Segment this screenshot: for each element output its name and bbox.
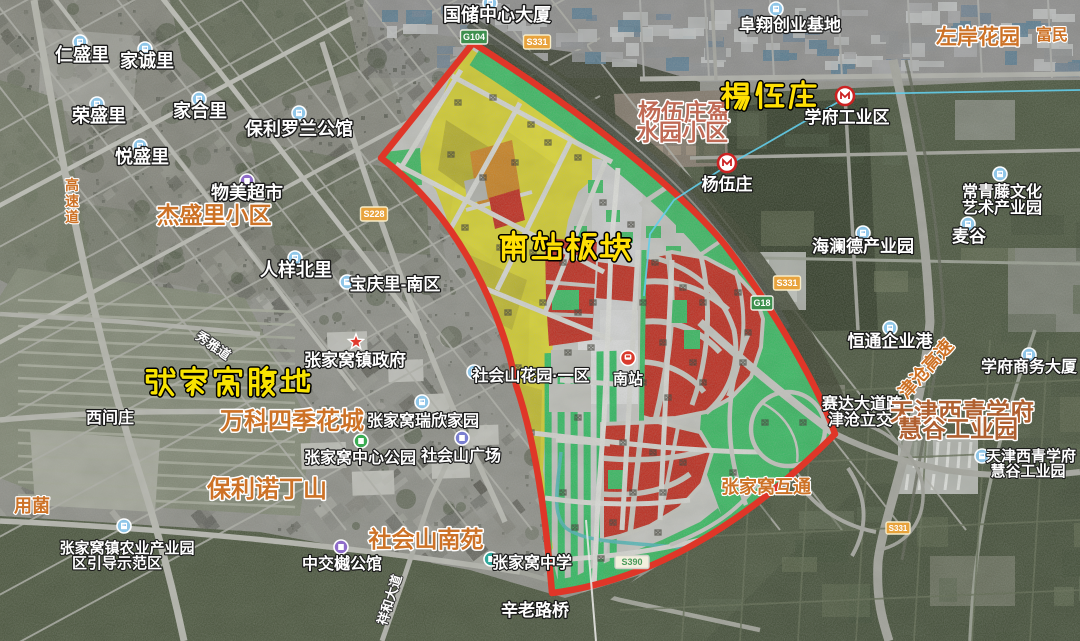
svg-text:水园小区: 水园小区 xyxy=(636,119,728,145)
svg-text:西间庄: 西间庄 xyxy=(86,408,134,427)
svg-text:海澜德产业园: 海澜德产业园 xyxy=(812,236,914,256)
svg-text:G104: G104 xyxy=(463,32,485,42)
svg-text:区引导示范区: 区引导示范区 xyxy=(72,554,162,572)
svg-text:用菌: 用菌 xyxy=(14,496,50,516)
svg-text:津沧立交: 津沧立交 xyxy=(828,410,892,429)
svg-text:社会山花园·一区: 社会山花园·一区 xyxy=(471,366,589,385)
svg-text:学府商务大厦: 学府商务大厦 xyxy=(981,357,1078,376)
svg-text:左岸花园: 左岸花园 xyxy=(936,25,1020,49)
svg-text:速: 速 xyxy=(65,193,79,209)
svg-text:常青藤文化: 常青藤文化 xyxy=(962,182,1042,201)
svg-text:仁盛里: 仁盛里 xyxy=(55,44,109,65)
svg-text:万科四季花城: 万科四季花城 xyxy=(220,407,364,435)
svg-text:富民: 富民 xyxy=(1036,25,1068,44)
svg-text:S228: S228 xyxy=(363,209,384,219)
svg-text:人样北里: 人样北里 xyxy=(260,259,332,280)
svg-text:慧谷工业园: 慧谷工业园 xyxy=(898,416,1018,443)
svg-text:辛老路桥: 辛老路桥 xyxy=(501,600,570,620)
svg-text:道: 道 xyxy=(65,209,79,225)
svg-text:物美超市: 物美超市 xyxy=(211,182,283,203)
svg-text:社会山广场: 社会山广场 xyxy=(420,446,501,465)
svg-text:悦盛里: 悦盛里 xyxy=(115,146,169,167)
svg-text:保利罗兰公馆: 保利罗兰公馆 xyxy=(244,118,353,139)
svg-text:杰盛里小区: 杰盛里小区 xyxy=(157,202,272,228)
svg-text:张家窝互通: 张家窝互通 xyxy=(721,476,811,497)
svg-text:S331: S331 xyxy=(776,278,797,288)
svg-text:宝庆里-南区: 宝庆里-南区 xyxy=(350,274,441,294)
svg-text:荣盛里: 荣盛里 xyxy=(71,105,126,126)
svg-text:S331: S331 xyxy=(526,37,547,47)
svg-text:恒通企业港: 恒通企业港 xyxy=(848,331,934,351)
svg-text:社会山南苑: 社会山南苑 xyxy=(369,526,484,552)
svg-text:家合里: 家合里 xyxy=(173,100,227,121)
svg-text:麦谷: 麦谷 xyxy=(952,226,987,246)
svg-text:张家窝中心公园: 张家窝中心公园 xyxy=(304,448,416,467)
svg-text:中交樾公馆: 中交樾公馆 xyxy=(302,554,382,573)
svg-text:保利诺丁山: 保利诺丁山 xyxy=(206,476,327,503)
svg-text:阜翔创业基地: 阜翔创业基地 xyxy=(739,15,841,35)
svg-text:张家窝中学: 张家窝中学 xyxy=(492,553,572,572)
svg-text:杨伍庄: 杨伍庄 xyxy=(702,174,753,194)
svg-text:S331: S331 xyxy=(889,524,908,533)
svg-text:张家窝瑞欣家园: 张家窝瑞欣家园 xyxy=(367,411,479,430)
svg-text:南站: 南站 xyxy=(613,370,643,388)
svg-text:张家窝镇政府: 张家窝镇政府 xyxy=(304,350,406,370)
svg-text:国储中心大厦: 国储中心大厦 xyxy=(443,4,552,25)
svg-text:艺术产业园: 艺术产业园 xyxy=(962,198,1042,217)
svg-text:G18: G18 xyxy=(753,298,770,308)
svg-text:高: 高 xyxy=(65,177,79,193)
svg-text:慧谷工业园: 慧谷工业园 xyxy=(990,462,1065,480)
svg-text:学府工业区: 学府工业区 xyxy=(805,107,890,127)
svg-text:家诚里: 家诚里 xyxy=(120,50,174,71)
svg-text:S390: S390 xyxy=(621,557,642,567)
